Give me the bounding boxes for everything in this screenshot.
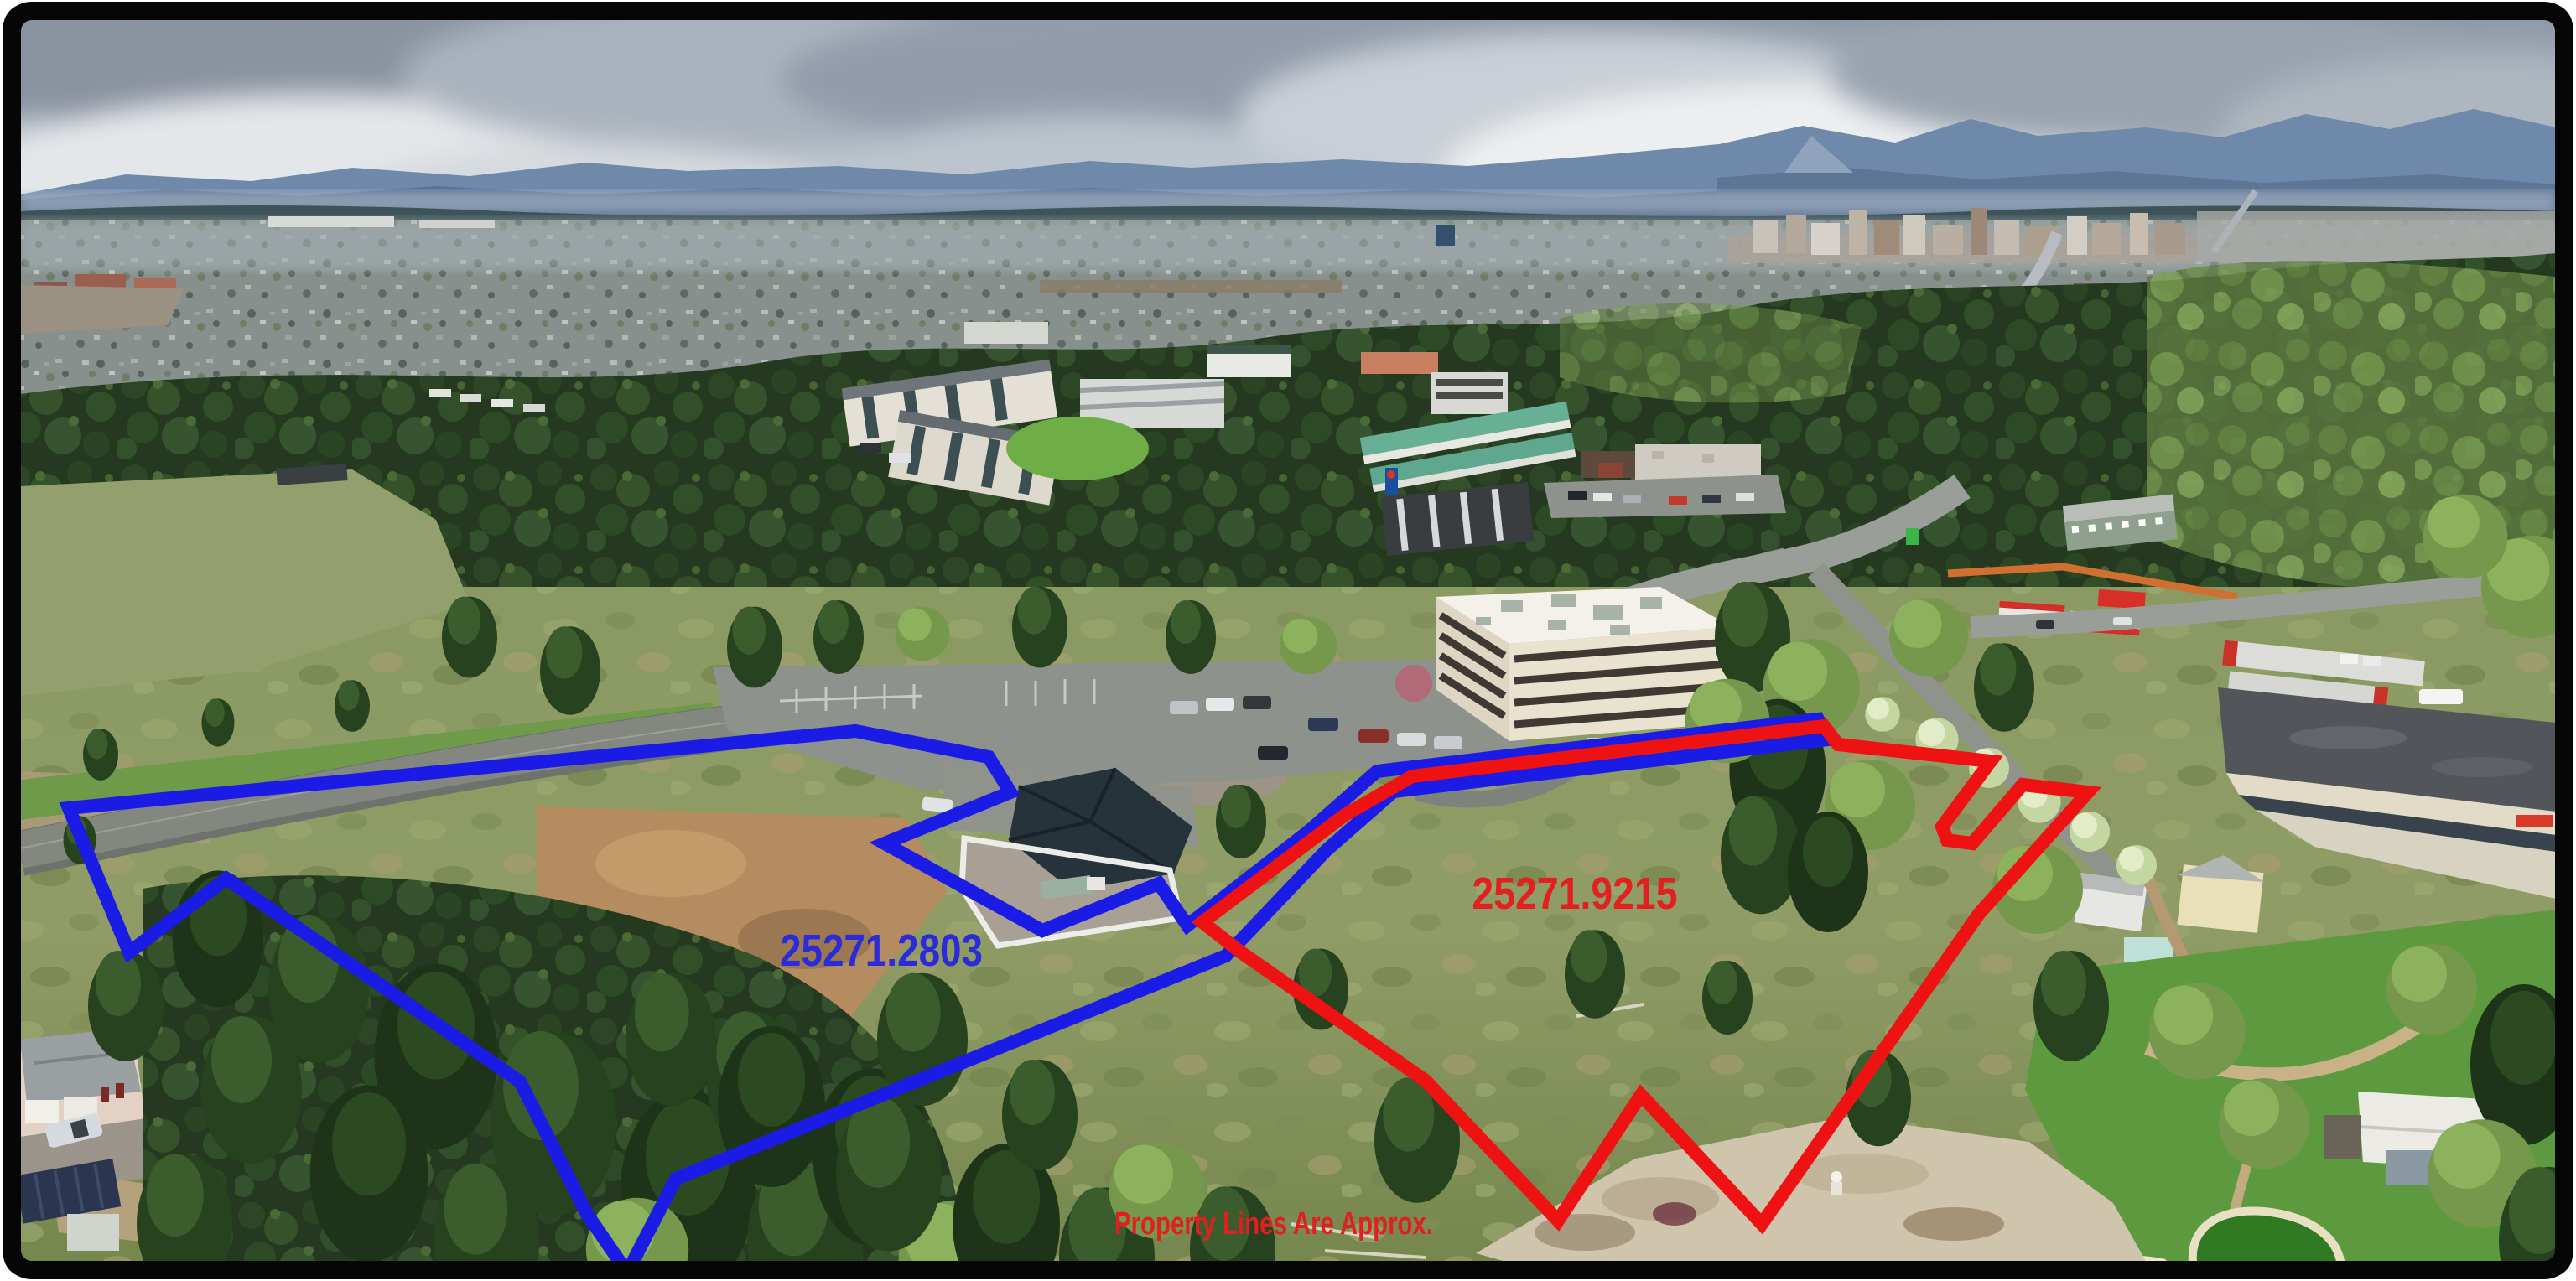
lawn [1006,417,1149,480]
blue-parcel-label: 25271.2803 [780,926,983,976]
restaurant [1581,451,1635,478]
rv-trailer [2419,689,2463,704]
red-parcel-label: 25271.9215 [1472,869,1678,919]
green-highway-sign [1906,528,1919,545]
orange-building [1361,352,1438,374]
disclaimer-text: Property Lines Are Approx. [1114,1206,1433,1242]
red-logo-stripe [2516,815,2553,827]
statue [1831,1171,1842,1195]
construction-building [1431,372,1508,414]
pink-tree [1395,665,1432,702]
white-condo-row [964,322,1048,344]
aerial-photo-frame: 25271.2803 25271.9215 Property Lines Are… [0,0,2576,1281]
greenhouse-shed [67,1214,119,1251]
aerial-photo: 25271.2803 25271.9215 Property Lines Are… [0,0,2576,1281]
blue-tower [1436,225,1455,246]
